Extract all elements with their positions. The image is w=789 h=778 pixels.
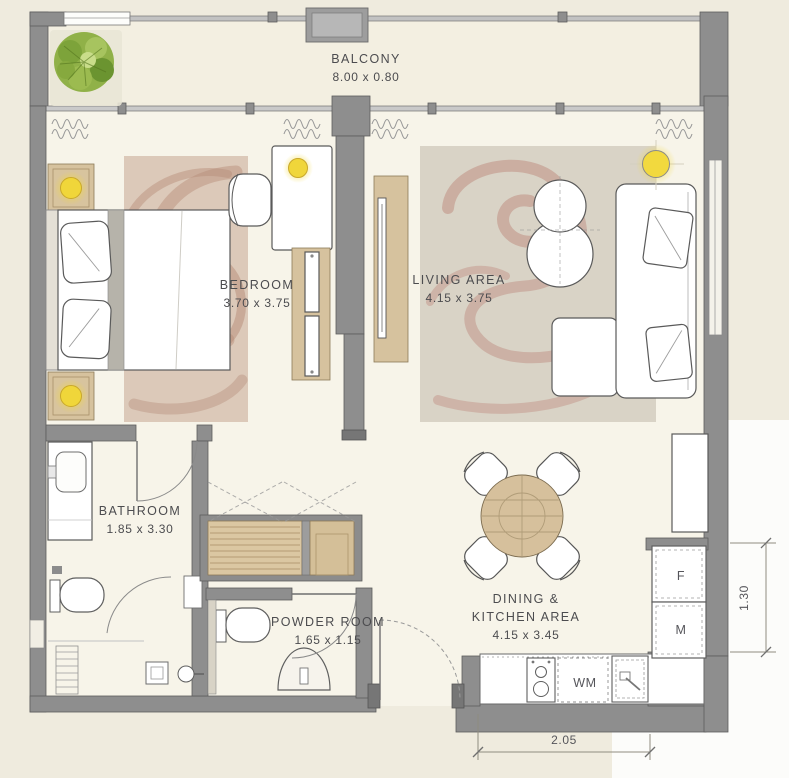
wardrobe	[292, 248, 330, 380]
dining-kitchen-label-1: DINING &	[493, 592, 560, 606]
kitchen-sink	[612, 656, 648, 702]
desk-chair	[229, 174, 271, 226]
powder-room-label: POWDER ROOM	[271, 615, 385, 629]
living-area-label: LIVING AREA	[412, 273, 505, 287]
wall-niche-shelf	[184, 576, 202, 608]
desk	[272, 146, 332, 250]
shower-head-icon	[178, 666, 194, 682]
console-table	[672, 434, 708, 532]
nightstand-top	[48, 164, 94, 212]
living-area-size: 4.15 x 3.75	[425, 291, 492, 305]
hall-closet	[200, 515, 362, 581]
bed	[46, 210, 230, 370]
bathroom-vanity	[48, 442, 92, 540]
appliance-f-label: F	[677, 569, 685, 583]
floor-plan-drawing: BALCONY 8.00 x 0.80 BEDROOM 3.70 x 3.75 …	[0, 0, 789, 778]
dimension-right-value: 1.30	[737, 585, 751, 611]
powder-room-size: 1.65 x 1.15	[294, 633, 361, 647]
stove	[527, 658, 555, 702]
dimension-bottom-value: 2.05	[551, 733, 577, 747]
fm-cabinet	[652, 546, 706, 658]
tv-unit	[374, 176, 408, 362]
planter-box	[306, 8, 368, 42]
appliance-wm-label: WM	[573, 676, 596, 690]
bedroom-size: 3.70 x 3.75	[223, 296, 290, 310]
bathroom-size: 1.85 x 3.30	[106, 522, 173, 536]
shower-drain	[146, 662, 168, 684]
floor-plan: BALCONY 8.00 x 0.80 BEDROOM 3.70 x 3.75 …	[0, 0, 789, 778]
bedroom-label: BEDROOM	[220, 278, 294, 292]
appliance-m-label: M	[675, 623, 686, 637]
dining-kitchen-size: 4.15 x 3.45	[492, 628, 559, 642]
bathroom-label: BATHROOM	[99, 504, 182, 518]
balcony-label: BALCONY	[331, 52, 401, 66]
dining-kitchen-label-2: KITCHEN AREA	[472, 610, 581, 624]
balcony-size: 8.00 x 0.80	[332, 70, 399, 84]
plant-icon	[50, 30, 122, 106]
nightstand-bottom	[48, 372, 94, 420]
